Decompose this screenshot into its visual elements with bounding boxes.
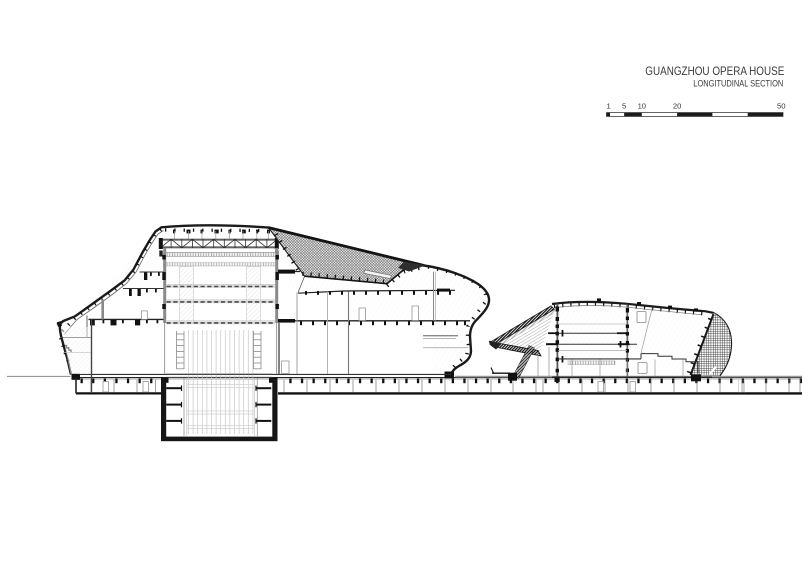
svg-text:10: 10	[638, 102, 646, 111]
svg-text:20: 20	[673, 102, 681, 111]
svg-text:1: 1	[606, 102, 610, 111]
svg-text:GUANGZHOU OPERA HOUSE: GUANGZHOU OPERA HOUSE	[645, 65, 784, 78]
svg-text:50: 50	[777, 102, 785, 111]
svg-text:5: 5	[622, 102, 626, 111]
svg-text:LONGITUDINAL SECTION: LONGITUDINAL SECTION	[693, 79, 783, 89]
